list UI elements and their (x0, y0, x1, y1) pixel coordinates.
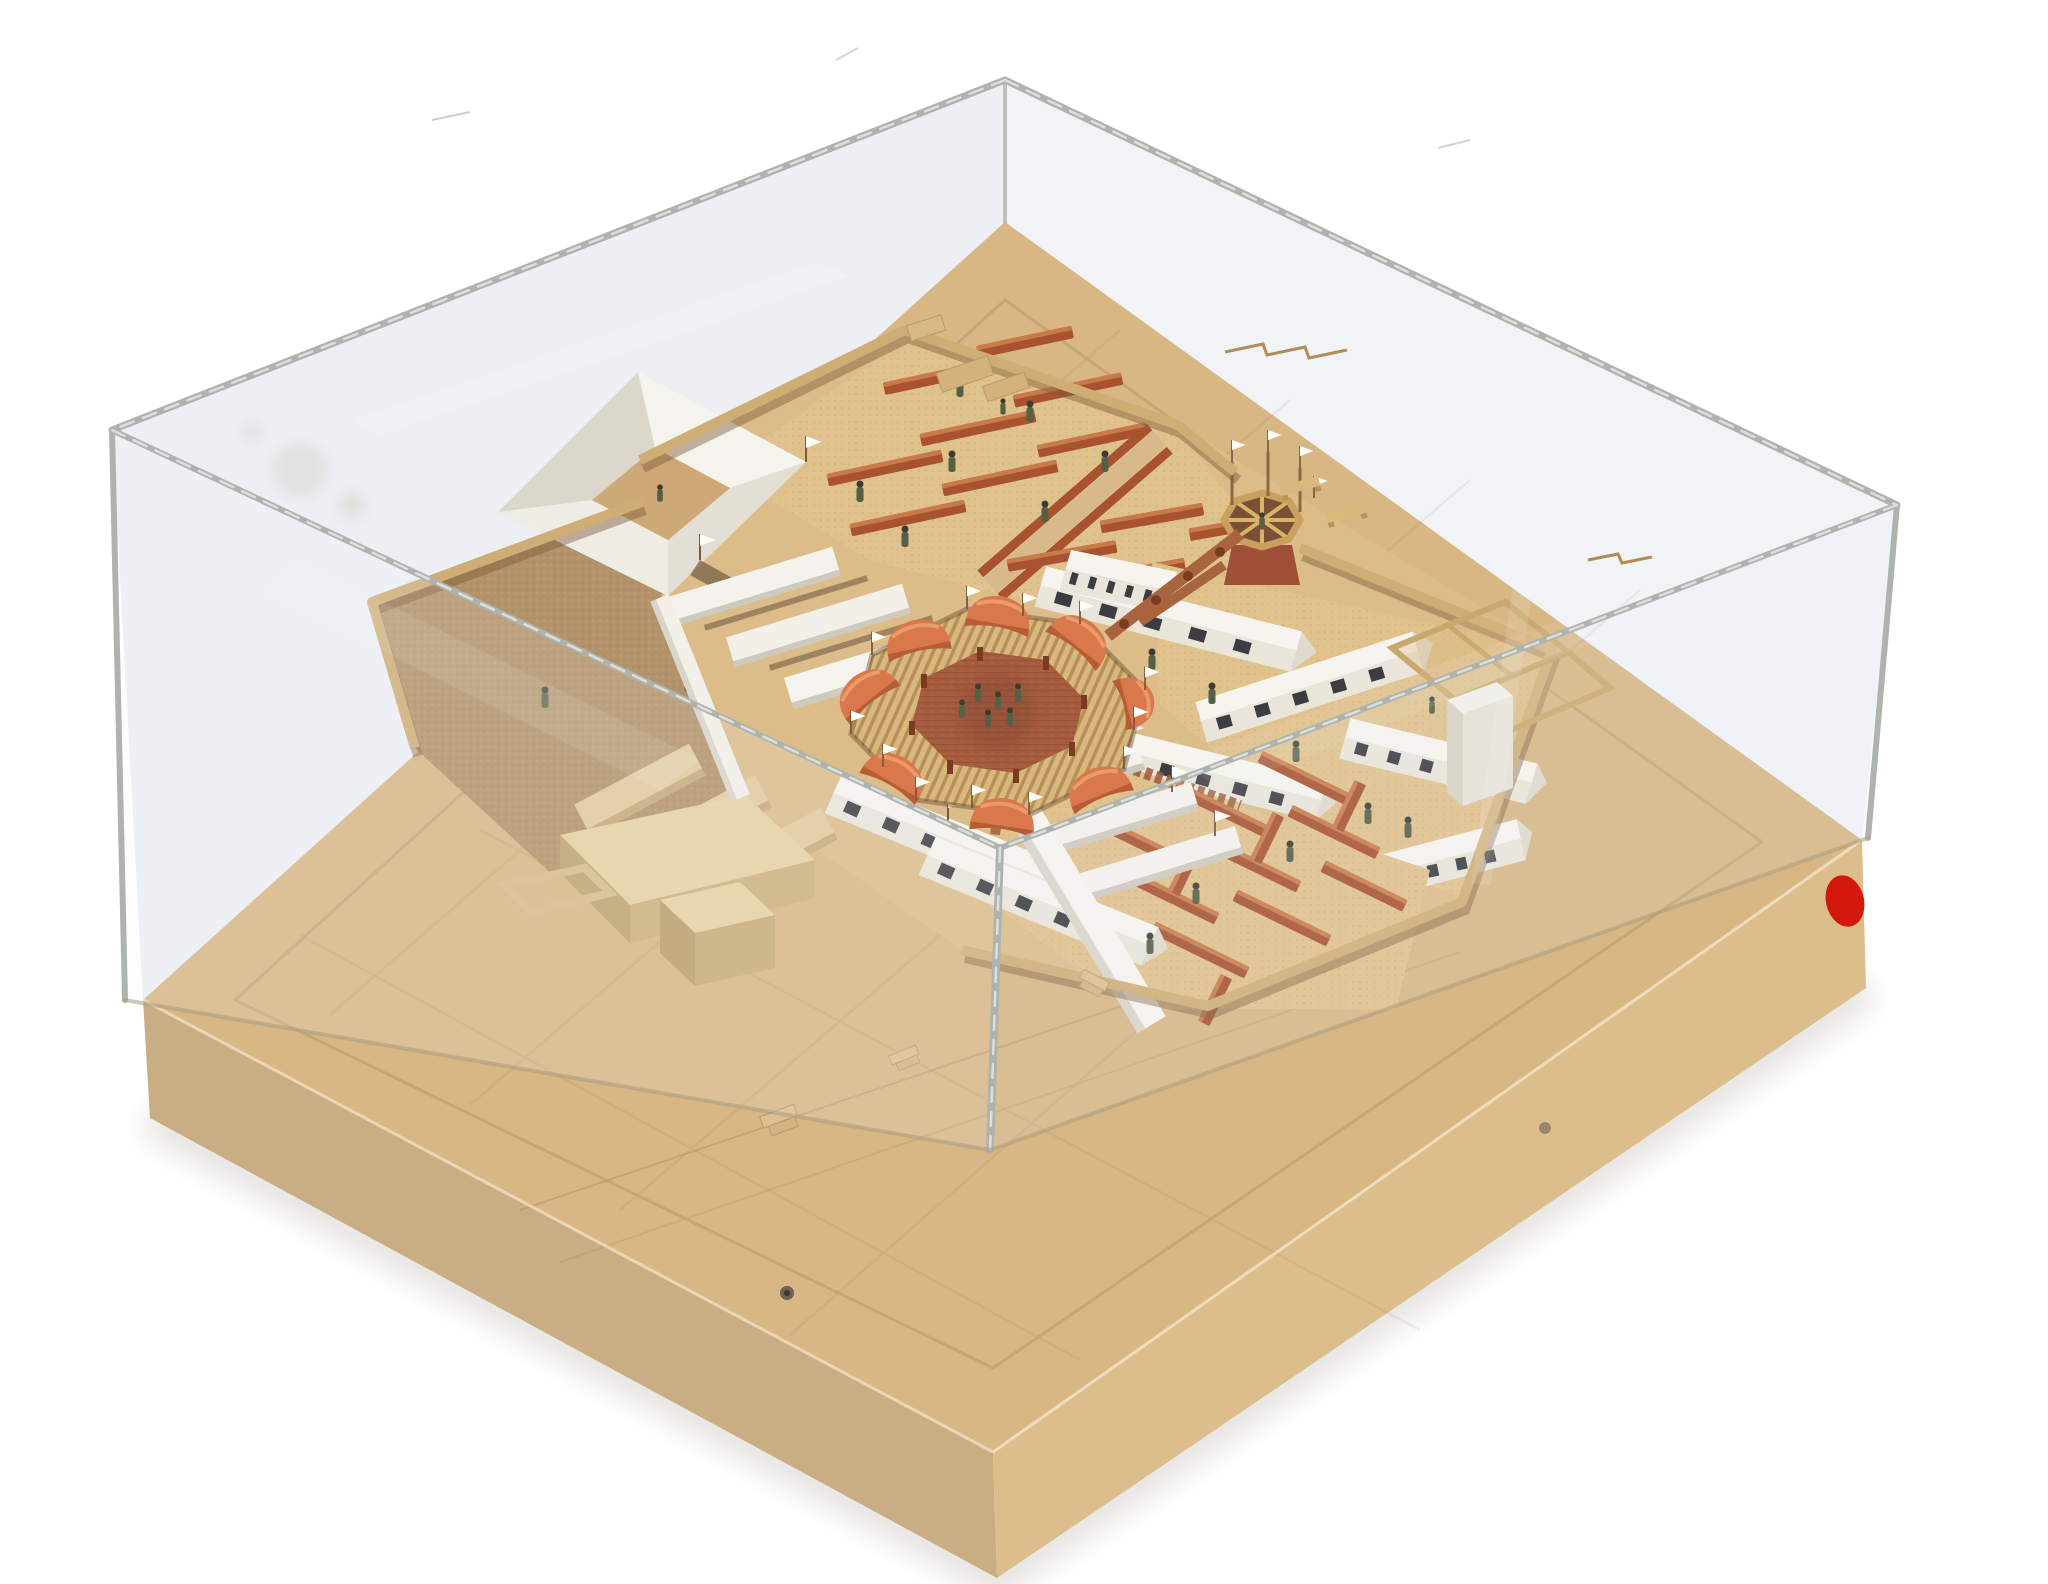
smudge (242, 422, 262, 442)
smudge (338, 491, 366, 519)
worn-patch (960, 674, 1036, 750)
model-photo (0, 0, 2048, 1584)
photo-stage (0, 0, 2048, 1584)
smudge (272, 442, 328, 498)
